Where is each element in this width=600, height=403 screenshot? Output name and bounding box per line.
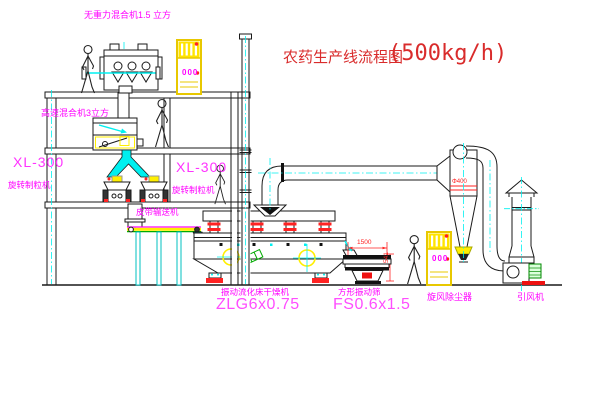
granulator-mid-name: 旋转制粒机 bbox=[172, 186, 215, 195]
gravity-mixer bbox=[82, 44, 162, 93]
cyclone-name-label: 旋风除尘器 bbox=[427, 293, 472, 302]
granulator-left-model: XL-300 bbox=[13, 155, 64, 169]
cyclone-marking: Φ400 bbox=[452, 179, 467, 185]
screen-model-label: FS0.6x1.5 bbox=[333, 297, 410, 313]
drawing-canvas: 无重力混合机1.5 立方 高速混合机3立方 XL-300 旋转制粒机 XL-30… bbox=[0, 0, 600, 403]
dryer-exhaust-duct bbox=[254, 158, 447, 216]
screen-height-dim: 541 bbox=[384, 252, 391, 263]
dryer-model-label: ZLG6x0.75 bbox=[216, 297, 300, 313]
high-speed-mixer-label: 高速混合机3立方 bbox=[41, 109, 109, 118]
fan-name-label: 引风机 bbox=[517, 293, 544, 302]
cabinet1-display: 000 bbox=[182, 69, 198, 77]
person-1 bbox=[82, 46, 95, 94]
high-speed-mixer bbox=[93, 118, 143, 150]
granulator-left-name: 旋转制粒机 bbox=[8, 181, 51, 190]
drawing-title: 农药生产线流程图 bbox=[283, 50, 403, 65]
vibrating-screen bbox=[343, 242, 394, 284]
granulator-mid-model: XL-300 bbox=[176, 160, 227, 174]
belt-conveyor-label: 皮带输送机 bbox=[136, 208, 179, 217]
person-2 bbox=[156, 100, 169, 148]
mixer-drop-chute bbox=[118, 93, 129, 118]
drawing-capacity: (500kg/h) bbox=[388, 43, 507, 65]
granulator-1 bbox=[103, 176, 131, 202]
right-wall bbox=[231, 92, 238, 285]
person-4 bbox=[408, 236, 421, 284]
control-cabinet-1 bbox=[177, 40, 201, 94]
bucket-elevator bbox=[240, 34, 252, 285]
belt-conveyor bbox=[127, 227, 201, 285]
gravity-mixer-label: 无重力混合机1.5 立方 bbox=[84, 11, 171, 20]
induced-draft-fan bbox=[503, 263, 545, 285]
fluid-bed-dryer bbox=[194, 211, 358, 283]
screen-length-dim: 1500 bbox=[357, 240, 371, 247]
cabinet2-display: 000 bbox=[432, 255, 448, 263]
